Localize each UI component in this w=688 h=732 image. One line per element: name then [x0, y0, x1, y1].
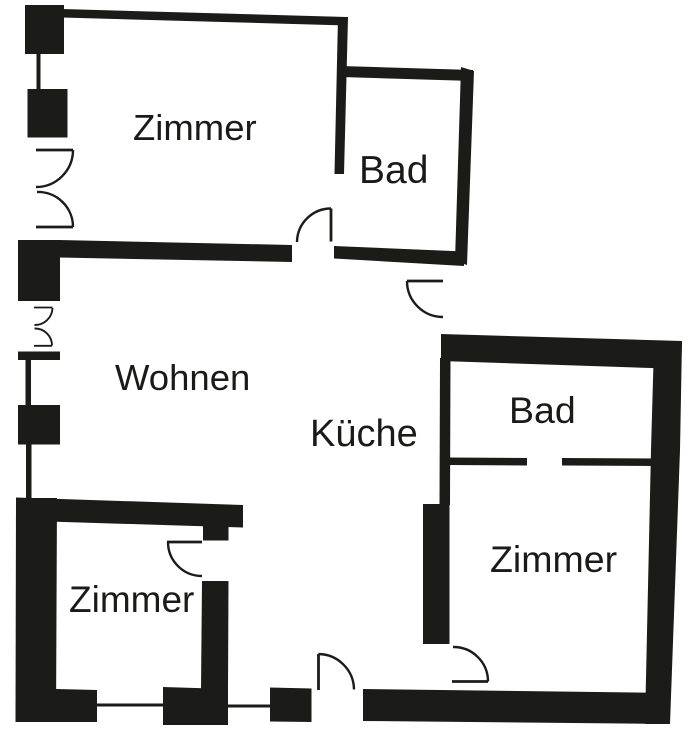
- svg-text:Zimmer: Zimmer: [490, 538, 617, 580]
- svg-text:Küche: Küche: [310, 413, 418, 455]
- svg-text:Zimmer: Zimmer: [69, 579, 194, 620]
- svg-text:Bad: Bad: [509, 389, 576, 431]
- svg-text:Zimmer: Zimmer: [133, 107, 257, 148]
- svg-text:Wohnen: Wohnen: [115, 357, 250, 398]
- svg-text:Bad: Bad: [359, 149, 428, 192]
